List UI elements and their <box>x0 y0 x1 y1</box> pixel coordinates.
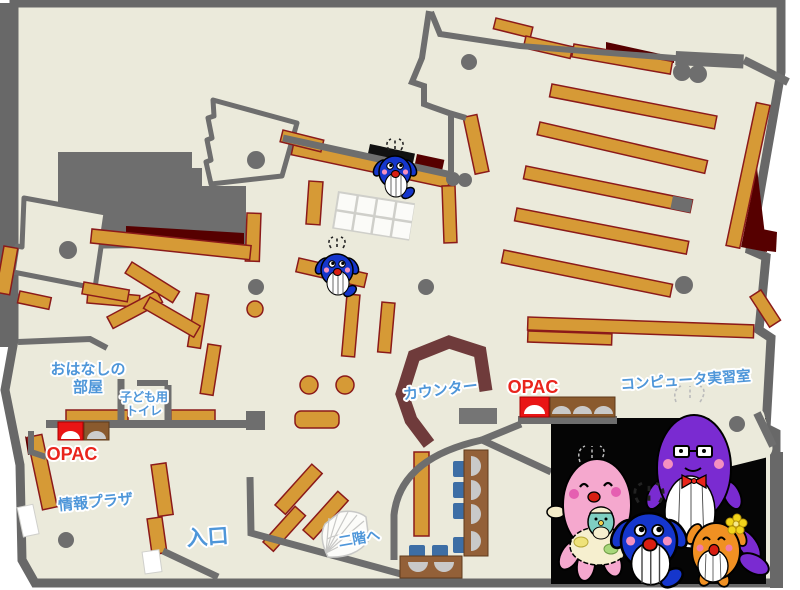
wall-block <box>246 411 265 430</box>
pillar <box>248 279 264 295</box>
label-opac-left: OPAC <box>47 444 98 464</box>
pillar <box>446 172 460 186</box>
label-storytelling-room-line1: おはなしの <box>50 361 125 378</box>
seat-marks <box>552 406 613 414</box>
study-table <box>400 556 462 578</box>
pillar <box>58 532 74 548</box>
label-opac-center: OPAC <box>508 377 559 397</box>
pillar <box>418 279 434 295</box>
chair <box>432 545 448 557</box>
library-floor-map: おはなしの 部屋 子ども用 トイレ OPAC 情報プラザ 入口 カウンター OP… <box>0 0 800 590</box>
pillar <box>675 276 693 294</box>
shelf-endcap <box>142 550 162 574</box>
label-kids-toilet-line2: トイレ <box>126 404 162 418</box>
pillar <box>458 173 472 187</box>
shelf <box>442 186 457 243</box>
pillar <box>59 241 77 259</box>
round-table <box>300 376 318 394</box>
pillar <box>689 65 707 83</box>
round-table <box>247 301 263 317</box>
pillar <box>247 151 265 169</box>
left-outer-wall <box>0 3 14 347</box>
pillar <box>461 54 477 70</box>
pillar <box>729 416 745 432</box>
shelf <box>306 181 323 225</box>
label-storytelling-room-line2: 部屋 <box>73 378 103 396</box>
opac-terminal-center <box>518 397 617 424</box>
round-table <box>336 376 354 394</box>
pillar <box>673 63 691 81</box>
bench <box>459 408 497 424</box>
label-entrance: 入口 <box>186 525 230 551</box>
low-table <box>295 411 339 428</box>
opac-terminal-left <box>58 422 109 440</box>
shelf <box>528 331 612 345</box>
chair <box>409 545 425 557</box>
wall <box>770 452 783 588</box>
label-kids-toilet-line1: 子ども用 <box>120 390 168 404</box>
